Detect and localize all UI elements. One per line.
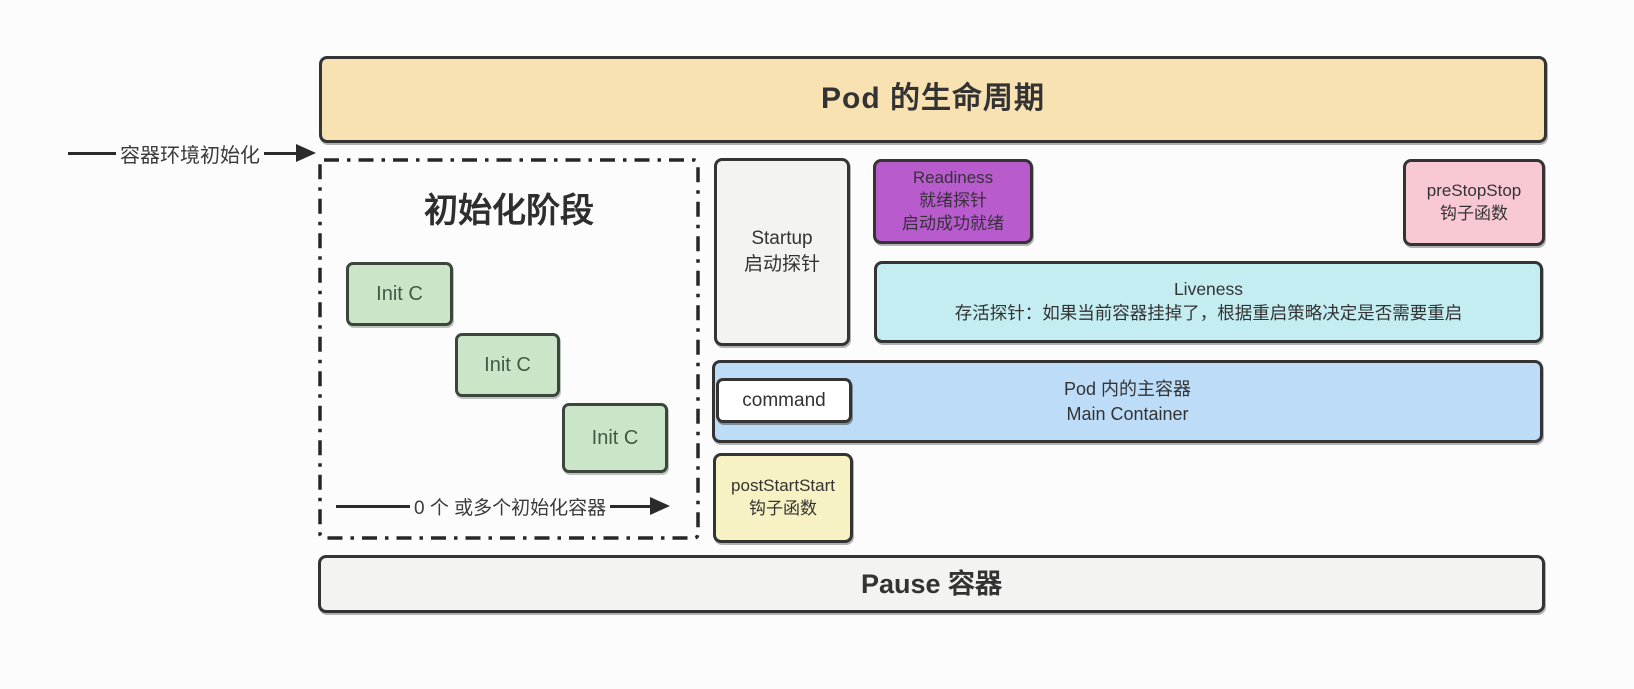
- pause-container-label: Pause 容器: [861, 566, 1002, 602]
- init-count-arrow-label: 0 个 或多个初始化容器: [410, 493, 610, 520]
- diagram-title-banner: Pod 的生命周期: [319, 56, 1547, 143]
- init-container-label: Init C: [484, 352, 531, 379]
- env-init-arrow-label: 容器环境初始化: [116, 139, 264, 168]
- arrowhead-right-icon: [650, 497, 670, 515]
- init-phase-title: 初始化阶段: [318, 183, 700, 232]
- env-init-arrow: 容器环境初始化: [68, 141, 316, 165]
- init-container-label: Init C: [592, 425, 639, 452]
- arrow-line: [68, 152, 116, 155]
- command-label: command: [742, 388, 825, 414]
- pre-stop-hook-name: preStopStop: [1421, 180, 1527, 203]
- pre-stop-hook-box: preStopStop 钩子函数: [1403, 159, 1545, 246]
- pre-stop-hook-desc: 钩子函数: [1440, 203, 1508, 226]
- post-start-hook-box: postStartStart 钩子函数: [713, 453, 853, 543]
- startup-probe-desc: 启动探针: [744, 252, 820, 278]
- post-start-hook-desc: 钩子函数: [749, 498, 817, 521]
- liveness-probe-name: Liveness: [1174, 278, 1243, 302]
- init-count-arrow: 0 个 或多个初始化容器: [336, 494, 670, 518]
- arrowhead-right-icon: [296, 144, 316, 162]
- readiness-probe-desc: 就绪探针: [919, 190, 987, 213]
- init-container-box-2: Init C: [455, 333, 560, 397]
- startup-probe-box: Startup 启动探针: [714, 158, 850, 346]
- readiness-probe-name: Readiness: [913, 167, 993, 190]
- liveness-probe-box: Liveness 存活探针：如果当前容器挂掉了，根据重启策略决定是否需要重启: [874, 261, 1543, 343]
- arrow-line: [610, 505, 650, 508]
- pod-lifecycle-diagram: Pod 的生命周期 容器环境初始化 初始化阶段 Init C Init C In…: [0, 0, 1634, 689]
- pause-container-banner: Pause 容器: [318, 555, 1545, 613]
- readiness-probe-note: 启动成功就绪: [902, 213, 1004, 236]
- diagram-title: Pod 的生命周期: [821, 79, 1045, 120]
- init-container-label: Init C: [376, 281, 423, 308]
- arrow-line: [336, 505, 410, 508]
- arrow-line: [264, 152, 296, 155]
- command-box: command: [716, 378, 852, 423]
- init-container-box-1: Init C: [346, 262, 453, 326]
- main-container-subtitle: Main Container: [1066, 402, 1188, 426]
- liveness-probe-desc: 存活探针：如果当前容器挂掉了，根据重启策略决定是否需要重启: [955, 302, 1463, 326]
- main-container-title: Pod 内的主容器: [1064, 377, 1191, 401]
- post-start-hook-name: postStartStart: [730, 475, 836, 498]
- readiness-probe-box: Readiness 就绪探针 启动成功就绪: [873, 159, 1033, 244]
- startup-probe-name: Startup: [751, 226, 812, 252]
- init-container-box-3: Init C: [562, 403, 668, 473]
